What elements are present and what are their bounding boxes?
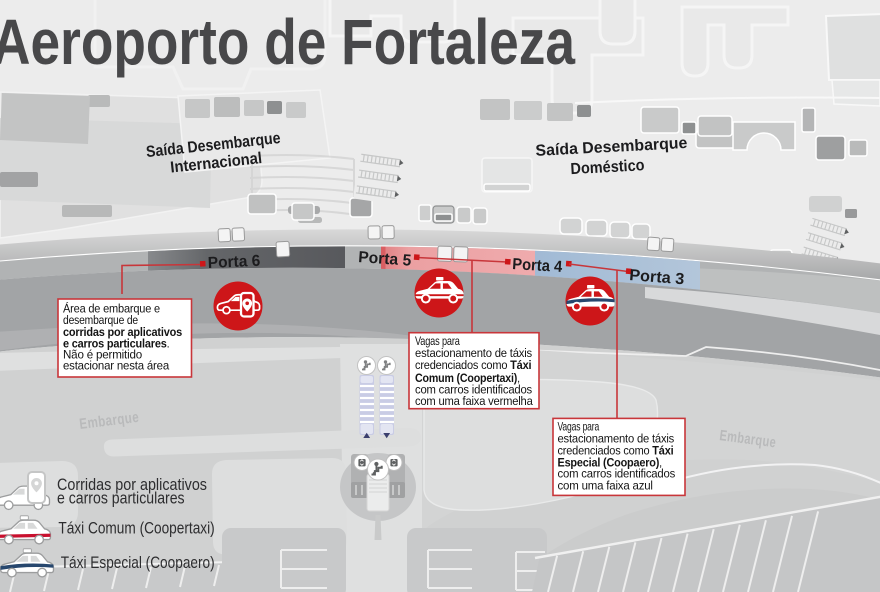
svg-text:Porta 4: Porta 4 — [512, 256, 563, 276]
svg-text:estacionar nesta área: estacionar nesta área — [63, 359, 169, 373]
svg-text:Táxi Comum (Coopertaxi): Táxi Comum (Coopertaxi) — [58, 519, 214, 538]
svg-text:com uma faixa azul: com uma faixa azul — [558, 478, 653, 492]
svg-text:Táxi Especial (Coopaero): Táxi Especial (Coopaero) — [61, 553, 215, 572]
svg-text:Aeroporto de Fortaleza: Aeroporto de Fortaleza — [0, 6, 575, 78]
svg-text:Porta 6: Porta 6 — [207, 253, 260, 272]
svg-text:e carros particulares: e carros particulares — [57, 489, 185, 508]
svg-text:com uma faixa vermelha: com uma faixa vermelha — [415, 394, 533, 408]
